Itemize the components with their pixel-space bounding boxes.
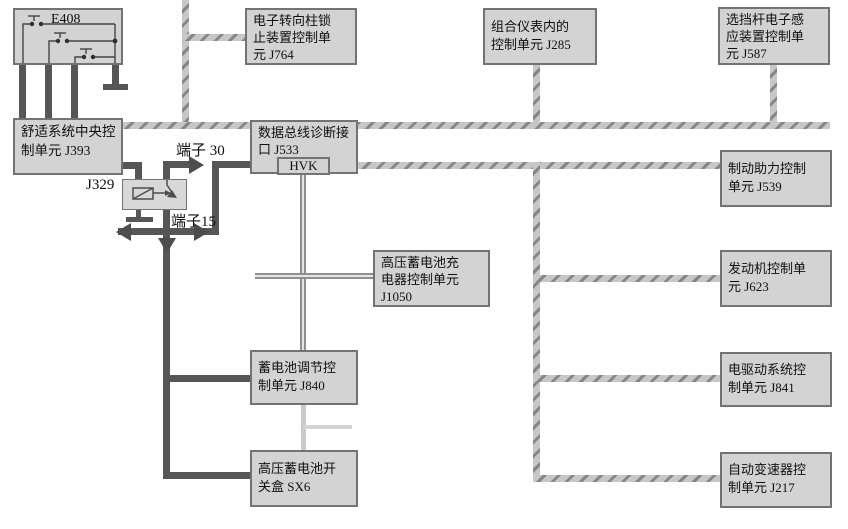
wire-terminal30-h: [163, 161, 190, 168]
box-text-line: 制单元 J217: [728, 479, 827, 497]
box-text-line: 电子转向柱锁: [253, 13, 352, 30]
wire-to-sx6: [163, 472, 250, 479]
ground-symbol-e408: [103, 84, 128, 90]
bus-branch-j764: [182, 34, 246, 41]
box-text-line: 关盒 SX6: [258, 478, 353, 496]
wire-j393-out-v: [135, 162, 142, 179]
box-text-line: 应装置控制单: [726, 29, 825, 46]
control-unit-j285: 组合仪表内的 控制单元 J285: [483, 8, 597, 65]
box-text-line: 制单元 J841: [728, 379, 827, 397]
box-text-line: 元 J587: [726, 46, 825, 63]
control-unit-j764: 电子转向柱锁 止装置控制单 元 J764: [245, 8, 357, 65]
control-unit-j393: 舒适系统中央控 制单元 J393: [13, 118, 123, 175]
bus-branch-j841: [533, 375, 720, 382]
bus-vertical-right: [533, 162, 540, 482]
box-text-line: 组合仪表内的: [491, 18, 592, 36]
box-text-line: 制单元 J840: [258, 377, 353, 395]
box-text-line: 制动助力控制: [728, 160, 827, 178]
control-unit-j623: 发动机控制单 元 J623: [720, 250, 832, 307]
box-text-line: 舒适系统中央控: [21, 123, 118, 142]
wire-e408-out2: [45, 64, 52, 118]
box-text-line: 元 J764: [253, 47, 352, 64]
box-text-line: 高压蓄电池充: [381, 255, 485, 272]
relay-symbol: [123, 180, 186, 209]
bus-branch-j623: [533, 275, 720, 282]
signal-line-to-j1050: [255, 273, 373, 279]
box-text-line: 制单元 J393: [21, 142, 118, 161]
box-text-line: 高压蓄电池开: [258, 460, 353, 478]
box-text-line: 选挡杆电子感: [726, 12, 825, 29]
bus-branch-j217: [533, 475, 720, 482]
relay-box-j329: [122, 179, 187, 210]
e408-label: E408: [51, 10, 81, 29]
relay-label-j329: J329: [86, 177, 114, 194]
box-text-line: 止装置控制单: [253, 30, 352, 47]
signal-line-hvk-to-j840: [300, 174, 306, 350]
box-text-line: 蓄电池调节控: [258, 359, 353, 377]
wire-e408-ground: [112, 64, 119, 84]
box-text-line: 数据总线诊断接: [258, 125, 353, 142]
control-unit-j1050: 高压蓄电池充 电器控制单元 J1050: [373, 250, 490, 307]
box-text-line: 控制单元 J285: [491, 36, 592, 54]
arrowhead-down: [158, 238, 176, 253]
wiring-diagram: E408: [0, 0, 848, 529]
bus-drop-j587: [770, 65, 777, 123]
switch-box-sx6: 高压蓄电池开 关盒 SX6: [250, 450, 358, 507]
terminal-30-label: 端子 30: [176, 139, 225, 160]
light-line-stub: [303, 425, 352, 429]
box-text-line: J1050: [381, 289, 485, 306]
box-text-line: 发动机控制单: [728, 260, 827, 278]
bus-drop-j285: [533, 64, 540, 123]
wire-to-j840: [163, 375, 250, 382]
control-unit-j840: 蓄电池调节控 制单元 J840: [250, 350, 358, 405]
box-text-line: 元 J623: [728, 278, 827, 296]
switch-box-e408: E408: [13, 8, 123, 65]
ground-symbol-relay: [126, 217, 153, 222]
control-unit-j587: 选挡杆电子感 应装置控制单 元 J587: [718, 7, 830, 65]
control-unit-j217: 自动变速器控 制单元 J217: [720, 452, 832, 508]
hvk-sub-box: HVK: [277, 157, 330, 175]
bus-vertical-top-left: [182, 0, 189, 125]
box-text-line: 自动变速器控: [728, 461, 827, 479]
box-text-line: 电驱动系统控: [728, 361, 827, 379]
box-text-line: 单元 J539: [728, 178, 827, 196]
control-unit-j539: 制动助力控制 单元 J539: [720, 150, 832, 207]
wire-e408-out1: [19, 64, 26, 118]
box-text-line: 电器控制单元: [381, 272, 485, 289]
terminal-15-label: 端子15: [171, 210, 216, 231]
wire-e408-out3: [71, 64, 78, 118]
arrowhead-terminal15-left: [116, 223, 131, 241]
bus-main-horizontal: [121, 122, 830, 129]
control-unit-j841: 电驱动系统控 制单元 J841: [720, 352, 832, 407]
